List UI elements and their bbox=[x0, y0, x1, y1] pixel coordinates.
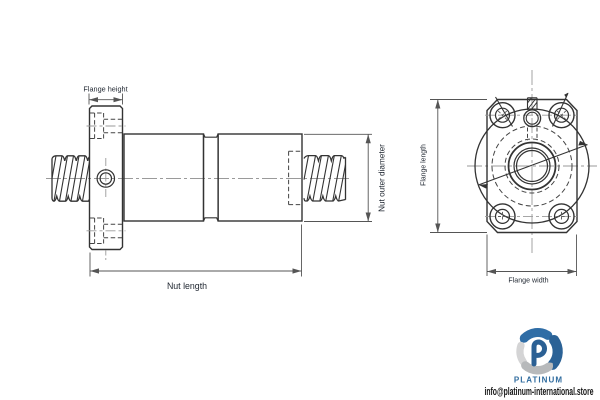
svg-text:Flange length: Flange length bbox=[421, 144, 428, 186]
svg-text:Flange height: Flange height bbox=[83, 85, 127, 94]
svg-text:Nut length: Nut length bbox=[167, 281, 207, 291]
svg-text:info@platinum-international.st: info@platinum-international.store bbox=[485, 386, 594, 398]
svg-text:Nut outer diameter: Nut outer diameter bbox=[378, 144, 387, 212]
svg-text:PLATINUM: PLATINUM bbox=[514, 376, 563, 385]
svg-text:Flange width: Flange width bbox=[508, 277, 548, 285]
